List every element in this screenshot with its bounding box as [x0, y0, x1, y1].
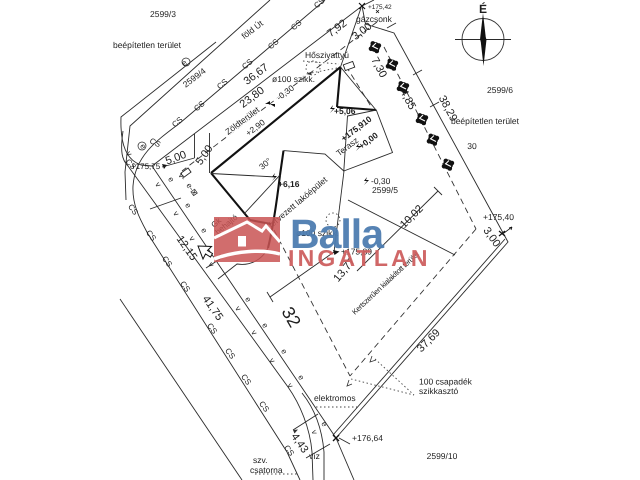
svg-text:+6,16: +6,16	[278, 179, 300, 189]
svg-text:víz: víz	[309, 451, 320, 461]
svg-text:2599/5: 2599/5	[372, 185, 398, 195]
svg-text:gázcsonk: gázcsonk	[356, 14, 393, 24]
svg-text:+176,64: +176,64	[352, 433, 383, 443]
svg-text:+175,42: +175,42	[368, 4, 392, 11]
svg-text:szv.: szv.	[253, 455, 267, 465]
svg-text:2599/3: 2599/3	[150, 9, 176, 19]
svg-text:szikkasztó: szikkasztó	[419, 386, 458, 396]
svg-text:beépítetlen terület: beépítetlen terület	[451, 116, 520, 126]
svg-text:elektromos: elektromos	[314, 393, 356, 403]
svg-text:100 csapadék: 100 csapadék	[419, 377, 473, 387]
svg-text:2599/10: 2599/10	[427, 451, 458, 461]
svg-text:csatorna: csatorna	[250, 465, 283, 475]
svg-text:+5,06: +5,06	[334, 106, 356, 116]
svg-text:30: 30	[467, 141, 477, 151]
svg-text:+175,40: +175,40	[483, 212, 514, 222]
svg-text:INGATLAN: INGATLAN	[288, 245, 431, 271]
svg-text:Hőszivattyú: Hőszivattyú	[305, 50, 349, 60]
svg-text:beépítetlen terület: beépítetlen terület	[113, 40, 182, 50]
svg-text:ø100 szikk.: ø100 szikk.	[272, 74, 315, 84]
svg-text:2599/6: 2599/6	[487, 85, 513, 95]
